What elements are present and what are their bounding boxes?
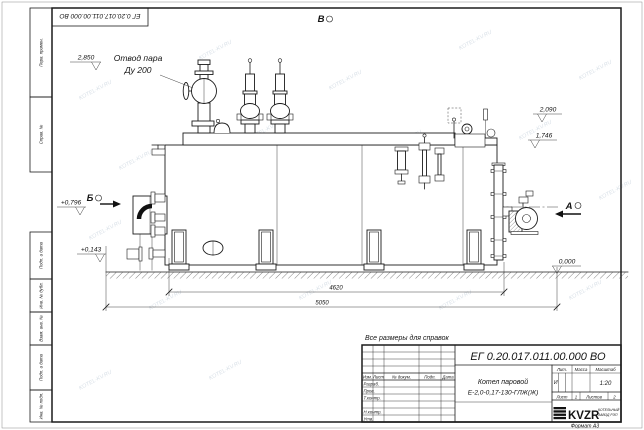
level-mark-2850: 2,850 xyxy=(70,55,101,71)
view-letter: Б xyxy=(87,193,94,204)
company-tagline-line2: ЗАВОД РЭП xyxy=(598,413,618,417)
drawing-sheet: KOTEL-KV.RU KOTEL-KV.RU KOTEL-KV.RU KOTE… xyxy=(0,0,644,430)
view-marker-b-left: Б xyxy=(87,193,121,208)
format-label: Формат А3 xyxy=(571,424,599,430)
watermark-text: KOTEL-KV.RU xyxy=(118,149,153,171)
level-mark-0143: +0,143 xyxy=(77,247,106,263)
scale-value: 1:20 xyxy=(600,381,612,387)
sig-row-label: Утв. xyxy=(364,417,374,422)
margin-label: Взам. инв. № xyxy=(39,315,44,342)
col-header-sign: Подп. xyxy=(424,375,435,380)
watermark-text: KOTEL-KV.RU xyxy=(328,69,363,91)
manhole xyxy=(203,241,223,255)
callout-line2: Ду 200 xyxy=(124,65,152,75)
boiler-side-view: 4620 5050 2,850 2,090 1,746 xyxy=(57,14,628,311)
elevation-text: 1,746 xyxy=(536,133,553,140)
product-title-line2: Е-2,0-0,17-130-ГЛЖ(Ж) xyxy=(468,390,539,397)
lit-value: И xyxy=(554,380,558,386)
steam-outlet-callout: Отвод пара Ду 200 xyxy=(114,53,193,88)
thermometer-well xyxy=(484,109,488,120)
watermark-text: KOTEL-KV.RU xyxy=(438,289,473,311)
col-header-date: Дата xyxy=(441,375,454,380)
view-marker-a-right: А xyxy=(555,201,581,218)
watermark-text: KOTEL-KV.RU xyxy=(208,359,243,381)
sheets-label: Листов xyxy=(585,395,602,400)
margin-label: Подп. и дата xyxy=(39,353,44,381)
col-header-scale: Масштаб xyxy=(595,367,616,372)
watermark-text: KOTEL-KV.RU xyxy=(148,289,183,311)
elevation-text: +0,796 xyxy=(61,200,82,207)
sig-row-label: Т.контр. xyxy=(364,396,381,401)
elevation-text: +0,143 xyxy=(81,247,102,254)
steam-outlet-valve xyxy=(183,60,216,133)
watermark-text: KOTEL-KV.RU xyxy=(458,29,493,51)
callout-line1: Отвод пара xyxy=(114,53,163,63)
view-letter: А xyxy=(565,201,573,212)
elevation-text: 2,850 xyxy=(77,55,95,62)
safety-valve xyxy=(267,59,293,133)
col-header-izm: Изм. xyxy=(363,375,372,380)
col-header-mass: Масса xyxy=(575,367,588,372)
safety-valve xyxy=(237,59,263,133)
level-mark-2090: 2,090 xyxy=(533,107,562,123)
watermark-text: KOTEL-KV.RU xyxy=(568,279,603,301)
margin-label: Подп. и дата xyxy=(39,241,44,269)
watermark-text: KOTEL-KV.RU xyxy=(78,369,113,391)
support-foot xyxy=(364,230,384,270)
doc-number: ЕГ 0.20.017.011.00.000 ВО xyxy=(470,351,606,363)
elevation-text: 2,090 xyxy=(539,107,557,114)
drawing-canvas: KOTEL-KV.RU KOTEL-KV.RU KOTEL-KV.RU KOTE… xyxy=(0,0,644,430)
watermark-text: KOTEL-KV.RU xyxy=(598,179,633,201)
sheet-value: 1 xyxy=(575,395,578,400)
support-foot xyxy=(464,230,484,270)
margin-label: Справ. № xyxy=(39,124,44,144)
watermark-text: KOTEL-KV.RU xyxy=(88,219,123,241)
col-header-doc: № докум. xyxy=(392,375,411,380)
company-logo-text: KVZR xyxy=(568,410,600,422)
level-mark-0796: +0,796 xyxy=(57,200,86,216)
col-header-list: Лист xyxy=(372,375,384,380)
product-title-line1: Котел паровой xyxy=(478,378,528,386)
col-header-lit: Лит. xyxy=(556,367,567,372)
sheets-value: 2 xyxy=(612,395,616,400)
watermark-text: KOTEL-KV.RU xyxy=(578,59,613,81)
lifting-ring xyxy=(487,129,495,137)
sight-dome xyxy=(214,119,230,133)
sig-row-label: Пров. xyxy=(364,389,375,394)
watermark-text: KOTEL-KV.RU xyxy=(298,279,333,301)
company-tagline-line1: КОТЕЛЬНЫЙ xyxy=(598,408,620,412)
margin-label: Инв. № подл. xyxy=(39,393,44,420)
sig-row-label: Разраб. xyxy=(364,382,380,387)
view-letter: В xyxy=(318,14,325,25)
front-wall-fittings xyxy=(149,145,165,259)
doc-number-stamp: ЕГ 0.20.017.011.00.000 ВО xyxy=(59,12,140,19)
watermark-text: KOTEL-KV.RU xyxy=(78,79,113,101)
dim-text-supports: 4620 xyxy=(329,286,343,292)
title-block: Все размеры для справок Изм. Лист № доку… xyxy=(362,334,621,422)
margin-label: Перв. примен. xyxy=(39,38,44,67)
reference-note: Все размеры для справок xyxy=(365,334,450,342)
feed-pump xyxy=(503,191,538,235)
elevation-text: 0,000 xyxy=(559,259,576,266)
sig-row-label: Н.контр. xyxy=(364,410,382,415)
dim-text-overall: 5050 xyxy=(315,301,329,307)
margin-label: Инв. № дубл. xyxy=(39,282,44,308)
support-foot xyxy=(256,230,276,270)
sheet-label: Лист xyxy=(555,395,567,400)
view-marker-v-top: В xyxy=(318,14,333,25)
watermark-text: KOTEL-KV.RU xyxy=(198,39,233,61)
company-logo-icon xyxy=(554,407,567,419)
level-mark-0000: 0,000 xyxy=(552,259,581,274)
support-foot xyxy=(169,230,189,270)
ground-hatch xyxy=(106,273,628,279)
